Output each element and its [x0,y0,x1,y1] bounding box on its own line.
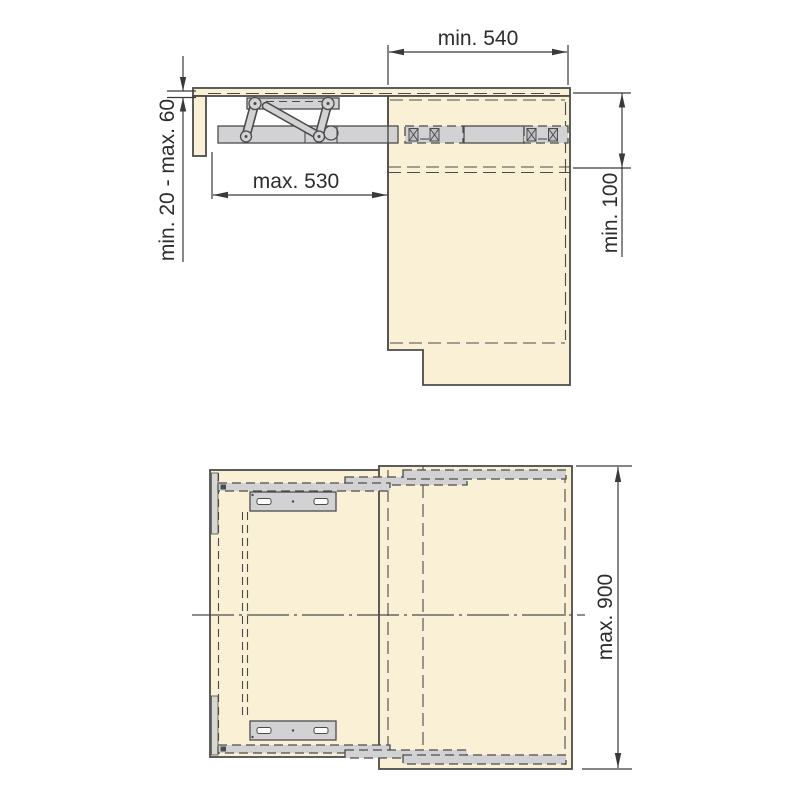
mounting-plate-top [250,492,336,511]
arrow-down-icon [619,154,625,168]
wall-batten [193,96,206,156]
arrow-right-icon [552,49,567,55]
slide-rail [218,126,568,143]
arrow-right-icon [372,192,387,198]
dim-label-mechanism-clearance: min. 100 [599,173,622,254]
drawing-canvas: min. 540 min. 20 - max. 60 max. 530 [0,0,800,800]
dim-label-extension: max. 530 [253,170,339,193]
arrow-left-icon [213,192,228,198]
dim-min-540: min. 540 [388,27,568,85]
mounting-plate-bottom [250,721,336,740]
dim-min-100: min. 100 [573,93,631,257]
arrow-left-icon [389,49,404,55]
arrow-up-icon [180,98,186,112]
edge-profile-top [212,473,219,534]
arrow-up-icon [615,467,621,482]
edge-profile-bottom [212,696,219,755]
technical-drawing: min. 540 min. 20 - max. 60 max. 530 [0,0,800,800]
dim-label-top-clearance: min. 20 - max. 60 [156,99,179,261]
tabletop-side [193,88,570,96]
dim-label-cabinet-width: min. 540 [438,27,519,50]
arrow-down-icon [180,77,186,91]
dim-max-900: max. 900 [576,466,632,769]
arrow-up-icon [619,94,625,108]
dim-max-530: max. 530 [212,152,387,199]
side-view: min. 540 min. 20 - max. 60 max. 530 [156,27,631,385]
dim-label-cabinet-length: max. 900 [594,574,617,660]
dim-top-clearance: min. 20 - max. 60 [156,56,196,262]
cabinet-bottom-panel [379,466,572,769]
plan-view: max. 900 [192,466,632,769]
arrow-down-icon [615,753,621,768]
